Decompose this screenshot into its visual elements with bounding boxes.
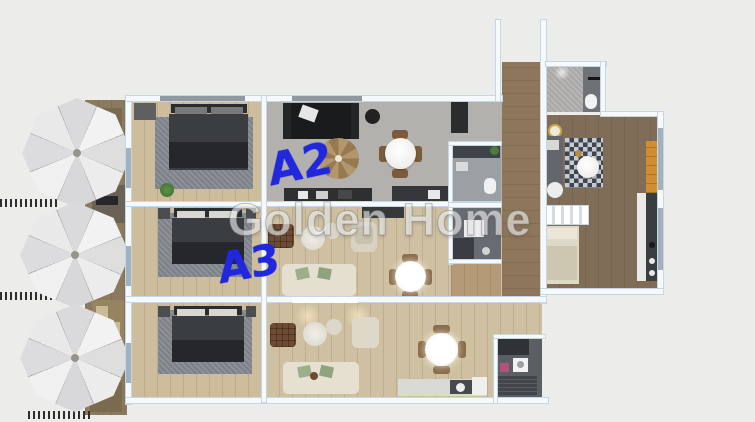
right-apt-bed-blanket: [547, 246, 577, 280]
a3-bathroom-sink: [482, 247, 490, 255]
wall-utility-left: [493, 334, 498, 404]
bottom-coffee-table-large: [303, 322, 327, 346]
floorplan-canvas: Golden Home A2 A3: [0, 0, 755, 422]
bedroom1-dresser: [134, 103, 156, 120]
umbrella-pole-1: [73, 149, 81, 157]
bedroom1-blanket: [169, 142, 248, 168]
a3-sofa-pillow-2: [317, 267, 332, 280]
a2-round-rug-center: [335, 155, 342, 162]
bottom-sofa-throw: [310, 372, 318, 380]
railing-ticks-1: [0, 199, 58, 207]
bottom-dining-chair-s: [433, 366, 450, 374]
window-balcony-door-1: [126, 148, 131, 188]
bedroom1-plant: [160, 183, 174, 197]
bottom-dining-chair-e: [458, 341, 466, 358]
a2-bathroom-sink: [456, 162, 468, 171]
railing-ticks-3: [28, 411, 92, 419]
top-bathroom-toilet: [585, 94, 597, 109]
window-right-2: [658, 208, 663, 270]
bedroom3-nightstand-left: [158, 306, 170, 317]
right-apt-round-table: [577, 156, 599, 178]
bottom-coffee-table-small: [326, 319, 342, 335]
right-apt-burner-2: [649, 258, 655, 264]
utility-shelf: [497, 376, 537, 396]
right-apt-gold-tray: [575, 150, 582, 157]
wall-bathrooms-top: [448, 141, 502, 146]
wall-utility-top: [493, 334, 546, 339]
door-opening-bottom-living: [292, 297, 358, 303]
right-apt-stairs: [545, 205, 589, 225]
wall-top-bathroom-top: [545, 61, 607, 67]
utility-appliance: [497, 338, 529, 355]
bottom-armchair: [352, 317, 379, 348]
a2-bathroom-plant: [490, 146, 499, 155]
wall-right-apt-bottom: [540, 288, 664, 295]
utility-laundry-basket: [500, 363, 509, 372]
a2-tall-cabinet: [451, 101, 468, 133]
annotation-a3: A3: [217, 238, 281, 291]
window-balcony-door-2: [126, 246, 131, 286]
bedroom2-nightstand-left: [158, 208, 170, 219]
right-apt-bed-pillow: [547, 228, 577, 239]
window-balcony-door-3: [126, 343, 131, 383]
bottom-kitchen-fridge: [472, 377, 487, 395]
utility-washer-door: [517, 361, 524, 368]
right-apt-kitchen-counter: [637, 193, 646, 281]
right-apt-burner-1: [649, 242, 655, 248]
a3-dining-table: [395, 261, 426, 292]
wall-bathrooms-bottom: [448, 259, 502, 264]
bedroom3-nightstand-right: [246, 306, 256, 317]
right-apt-burner-3: [649, 270, 655, 276]
top-bathroom-light-spot: [553, 66, 571, 79]
window-top-1: [160, 96, 245, 101]
wall-right-apt-top: [600, 111, 664, 117]
window-top-2: [292, 96, 362, 101]
bottom-sofa-pillow-2: [319, 365, 334, 378]
bottom-pouf: [270, 323, 296, 347]
wall-top-bathroom-right: [600, 61, 606, 117]
a2-dining-table: [385, 138, 416, 169]
patio-umbrella-3: [20, 304, 130, 412]
window-right-1: [658, 128, 663, 190]
bedroom3-blanket: [172, 340, 244, 362]
right-apt-floor-lamp: [547, 182, 563, 198]
patio-umbrella-1: [22, 98, 132, 208]
a3-entry-floor: [451, 262, 501, 298]
bottom-dining-chair-n: [433, 325, 450, 333]
right-apt-sofa-pillow: [547, 140, 559, 150]
a2-bathroom-toilet: [484, 178, 496, 194]
annotation-a2: A2: [266, 136, 335, 193]
bottom-dining-table: [425, 333, 458, 366]
a2-ottoman: [365, 109, 380, 124]
corridor-floor: [502, 62, 541, 302]
umbrella-pole-3: [71, 354, 79, 362]
bottom-kitchen-sink: [456, 383, 465, 392]
umbrella-pole-2: [71, 251, 79, 259]
wall-shaft-left: [495, 19, 501, 102]
a2-dining-chair-s: [392, 169, 408, 178]
wall-outer-bottom: [125, 397, 549, 404]
